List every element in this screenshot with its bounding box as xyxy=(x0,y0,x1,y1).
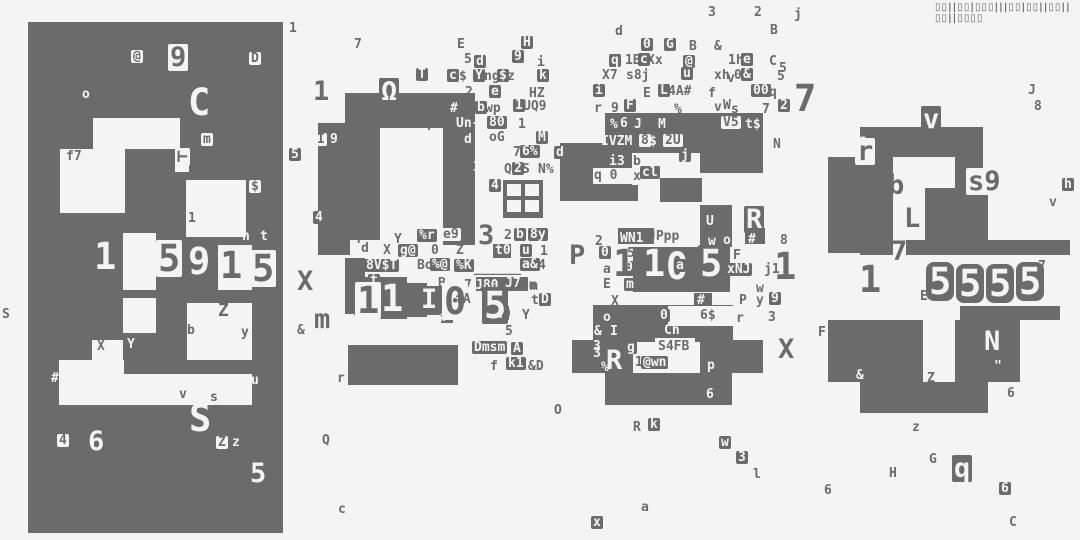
glyph: Un-L xyxy=(456,117,487,130)
glyph: 00 xyxy=(751,84,771,97)
glyph: n xyxy=(242,230,250,243)
glyph: $ xyxy=(249,180,261,193)
glyph: j xyxy=(794,8,802,21)
glyph: A xyxy=(511,342,523,355)
glyph: e xyxy=(741,53,753,66)
glyph: 9 xyxy=(503,308,511,321)
glyph: cl xyxy=(640,166,660,179)
glyph: 3 xyxy=(736,451,748,464)
glyph: IVZM xyxy=(601,135,632,148)
glyph: j1 xyxy=(764,263,780,276)
glyph: y xyxy=(756,294,764,307)
glyph: P xyxy=(569,242,585,269)
glyph: 4 xyxy=(489,179,501,192)
glyph: v xyxy=(1049,196,1057,209)
glyph: X xyxy=(297,268,313,295)
glyph: S xyxy=(522,163,530,176)
glyph: d xyxy=(554,146,566,159)
glyph: g@ xyxy=(398,244,418,257)
glyph: c xyxy=(447,69,459,82)
glyph: Dmsm xyxy=(472,341,507,354)
glyph: Q xyxy=(322,434,330,447)
glyph: G xyxy=(664,38,676,51)
glyph: 6 xyxy=(1007,387,1015,400)
glyph: 5 xyxy=(156,240,182,277)
pixel-block xyxy=(828,320,923,382)
glitch-canvas: @9DoCmf7⊢$1nt115915SZbyXY#uvsS46Zz51751I… xyxy=(0,0,1080,540)
glyph: & xyxy=(594,325,602,338)
glyph: t$ xyxy=(745,118,761,131)
pixel-block xyxy=(660,178,702,202)
glyph: z xyxy=(912,421,920,434)
glyph: % xyxy=(610,118,618,131)
glyph: 6 xyxy=(824,484,832,497)
glyph: Z xyxy=(216,436,228,449)
glyph: & xyxy=(714,40,722,53)
glyph: q xyxy=(952,455,972,482)
glyph: E xyxy=(920,290,928,303)
glyph: o xyxy=(82,88,90,101)
glyph: t0 xyxy=(495,244,511,257)
glyph: 4 xyxy=(57,434,69,447)
glyph: ______ xyxy=(474,262,521,275)
window-grid-icon xyxy=(503,180,543,218)
glyph: 5 xyxy=(698,245,724,282)
glyph: 5 xyxy=(505,325,513,338)
pixel-block-cutout xyxy=(59,374,252,405)
glyph: 7 xyxy=(794,80,816,117)
glyph: H xyxy=(889,467,897,480)
glyph: # xyxy=(748,233,756,246)
glyph: u xyxy=(520,244,532,257)
glyph: a xyxy=(674,259,686,272)
glyph: j xyxy=(679,149,691,162)
glyph: 7 xyxy=(762,103,770,116)
glyph: i3 xyxy=(609,155,625,168)
glyph: 7 xyxy=(354,38,362,51)
glyph: 6% xyxy=(520,145,540,158)
barcode-strip: ▯▯||▯▯|▯▯▯|||▯▯|▯▯||▯▯||▯▯||▯▯▯▯ xyxy=(935,2,1080,24)
glyph: 2 xyxy=(450,362,458,375)
glyph: 4 xyxy=(313,211,325,224)
glyph: I xyxy=(610,325,618,338)
glyph: t xyxy=(394,360,410,387)
glyph: P xyxy=(427,120,435,133)
glyph: H xyxy=(521,36,533,49)
glyph: y xyxy=(967,199,975,212)
glyph: & xyxy=(297,324,305,337)
glyph: 3 xyxy=(478,222,494,249)
glyph: m xyxy=(201,133,213,146)
glyph: 3 xyxy=(708,6,716,19)
glyph: F xyxy=(733,249,741,262)
glyph: Q xyxy=(504,163,512,176)
glyph: d xyxy=(615,25,623,38)
glyph: 5 xyxy=(926,262,954,301)
glyph: t xyxy=(531,294,539,307)
glyph: 1 xyxy=(188,212,196,225)
glyph: 4 xyxy=(538,259,546,272)
glyph: Ω xyxy=(379,78,399,105)
glyph: 1 xyxy=(126,234,148,271)
glyph: X7 xyxy=(602,69,618,82)
glyph: # xyxy=(51,372,59,385)
glyph: E xyxy=(643,87,651,100)
glyph: r xyxy=(855,138,875,165)
glyph: w xyxy=(719,436,731,449)
glyph: D xyxy=(539,293,551,306)
glyph: 3 xyxy=(768,311,776,324)
glyph: &D xyxy=(528,360,544,373)
glyph: R xyxy=(744,206,764,233)
glyph: 5 xyxy=(956,264,984,303)
glyph: UQ9 xyxy=(523,100,546,113)
glyph: I xyxy=(315,133,327,146)
glyph: E xyxy=(457,38,465,51)
glyph: Z xyxy=(456,244,464,257)
glyph: 0 xyxy=(658,309,670,322)
glyph: 0 xyxy=(641,38,653,51)
glyph: N% xyxy=(538,163,554,176)
glyph: b xyxy=(187,324,195,337)
glyph: f7 xyxy=(66,150,82,163)
glyph: s8j xyxy=(626,69,649,82)
glyph: % xyxy=(674,103,682,116)
glyph: @wn xyxy=(641,356,668,369)
glyph: # xyxy=(440,311,448,324)
pixel-block xyxy=(828,157,860,253)
glyph: 2 xyxy=(778,99,790,112)
glyph: # xyxy=(450,102,458,115)
glyph: Y xyxy=(522,309,530,322)
glyph: S4FB xyxy=(658,340,689,353)
glyph: 2 xyxy=(465,86,473,99)
glyph: o xyxy=(603,311,611,324)
glyph: Z xyxy=(927,372,935,385)
glyph: y xyxy=(241,326,249,339)
glyph: %K xyxy=(454,259,474,272)
glyph: X xyxy=(383,244,391,257)
glyph: 1 xyxy=(381,280,403,317)
glyph: 7 xyxy=(891,238,907,265)
glyph: F xyxy=(818,326,826,339)
glyph: 1 xyxy=(859,261,881,298)
glyph: 1 xyxy=(643,245,665,282)
glyph: q 0 xyxy=(594,169,617,182)
glyph: S xyxy=(2,308,10,321)
glyph: 6 xyxy=(999,482,1011,495)
glyph: %r xyxy=(417,229,437,242)
glyph: q xyxy=(769,86,777,99)
glyph: L xyxy=(904,205,920,232)
glyph: 9 xyxy=(168,44,188,71)
glyph: m xyxy=(314,306,330,333)
glyph: 2 xyxy=(504,229,512,242)
glyph: %@ xyxy=(430,258,450,271)
glyph: P xyxy=(739,294,747,307)
pixel-block-cutout xyxy=(59,360,124,374)
glyph: 1 xyxy=(94,238,116,275)
glyph: 1 xyxy=(289,22,297,35)
glyph: V5 xyxy=(721,116,741,129)
glyph: f xyxy=(490,360,498,373)
glyph: C xyxy=(188,84,210,121)
glyph: 8y xyxy=(528,228,548,241)
glyph: b xyxy=(888,172,904,199)
glyph: e9 xyxy=(441,228,461,241)
glyph: d xyxy=(359,242,371,255)
glyph: Z xyxy=(218,302,229,320)
glyph: 1 xyxy=(313,78,329,105)
glyph: s9 xyxy=(966,168,1003,195)
glyph: m xyxy=(530,280,538,293)
glyph: z xyxy=(232,436,240,449)
glyph: k1 xyxy=(506,357,526,370)
glyph: 8 xyxy=(1034,100,1042,113)
glyph: 5 xyxy=(779,62,787,75)
glyph: x xyxy=(591,516,603,529)
glyph: A xyxy=(879,196,887,209)
glyph: c xyxy=(338,503,346,516)
glyph: a xyxy=(641,501,649,514)
glyph: Xx xyxy=(647,54,663,67)
glyph: 80 xyxy=(487,116,507,129)
glyph: e xyxy=(489,85,501,98)
glyph: D xyxy=(249,52,261,65)
glyph: M xyxy=(658,118,666,131)
glyph: a& xyxy=(520,258,540,271)
glyph: 1 xyxy=(355,282,381,319)
glyph: U xyxy=(706,215,714,228)
glyph: k xyxy=(648,418,660,431)
glyph: C xyxy=(769,55,777,68)
window-pane xyxy=(525,200,539,212)
glyph: B xyxy=(689,40,697,53)
glyph: 5 xyxy=(250,460,266,487)
glyph: k xyxy=(537,69,549,82)
glyph: 3 xyxy=(593,347,601,360)
pixel-block xyxy=(860,200,893,255)
glyph: 9 xyxy=(330,133,338,146)
glyph: 6 xyxy=(706,388,714,401)
glyph: 0 xyxy=(431,244,439,257)
window-pane xyxy=(507,200,521,212)
glyph: d xyxy=(474,55,486,68)
glyph: u xyxy=(681,67,693,80)
glyph: 7 xyxy=(1038,260,1046,273)
glyph: 4A# xyxy=(668,85,691,98)
glyph: J xyxy=(634,118,642,131)
glyph: O xyxy=(554,404,562,417)
pixel-block xyxy=(960,306,1060,320)
glyph: xNJ xyxy=(725,263,752,276)
glyph: wp xyxy=(485,102,501,115)
glyph: $ xyxy=(459,70,467,83)
glyph: g xyxy=(625,341,637,354)
pixel-block xyxy=(906,240,1070,255)
glyph: q xyxy=(609,54,621,67)
window-pane xyxy=(507,184,521,196)
glyph: M xyxy=(536,131,548,144)
glyph: C xyxy=(1009,516,1017,529)
glyph: 1 xyxy=(613,245,635,282)
glyph: 1 xyxy=(220,247,242,284)
glyph: @ xyxy=(131,50,143,63)
glyph: z xyxy=(507,70,515,83)
glyph: G xyxy=(929,453,937,466)
glyph: 5 xyxy=(464,53,472,66)
glyph: v xyxy=(921,106,941,133)
glyph: B xyxy=(770,24,778,37)
glyph: $ xyxy=(649,135,657,148)
glyph: ⊢ xyxy=(175,148,190,166)
glyph: 5 xyxy=(250,250,276,287)
glyph: 3M xyxy=(473,161,489,174)
glyph: r xyxy=(594,102,602,115)
glyph: o5 xyxy=(723,234,739,247)
glyph: 9 xyxy=(186,243,212,280)
pixel-block-cutout xyxy=(186,180,246,237)
glyph: N xyxy=(984,328,1000,355)
glyph: 6$ xyxy=(700,309,716,322)
glyph: p xyxy=(707,359,715,372)
glyph: X xyxy=(778,336,794,363)
glyph: X xyxy=(611,295,619,308)
glyph: 5 xyxy=(986,264,1014,303)
glyph: I xyxy=(421,286,437,313)
glyph: 8V$T xyxy=(364,259,399,272)
pixel-block-cutout xyxy=(93,118,180,149)
glyph: S xyxy=(189,400,211,437)
glyph: F xyxy=(624,99,636,112)
glyph: R xyxy=(606,347,622,374)
glyph: 1 xyxy=(518,118,526,131)
glyph: 1 xyxy=(540,245,548,258)
pixel-block xyxy=(345,125,380,240)
glyph: 9 xyxy=(769,292,781,305)
glyph: u xyxy=(251,374,259,387)
glyph: 6 xyxy=(88,428,104,455)
glyph: R xyxy=(633,421,641,434)
glyph: t xyxy=(260,230,268,243)
glyph: J xyxy=(1028,84,1036,97)
window-pane xyxy=(525,184,539,196)
glyph: 2 xyxy=(754,6,762,19)
glyph: T xyxy=(416,68,428,81)
glyph: a xyxy=(603,263,611,276)
glyph: Y xyxy=(127,338,135,351)
glyph: v xyxy=(179,388,187,401)
glyph: Ch xyxy=(664,324,680,337)
glyph: 2U xyxy=(663,134,683,147)
glyph: & xyxy=(854,369,866,382)
glyph: 6 xyxy=(618,117,630,130)
glyph: l xyxy=(753,468,761,481)
glyph: d xyxy=(464,133,472,146)
glyph: # xyxy=(697,294,705,307)
glyph: 5 xyxy=(289,148,301,161)
glyph: h xyxy=(1062,178,1074,191)
glyph: & xyxy=(741,68,753,81)
glyph: N xyxy=(773,138,781,151)
glyph: $ xyxy=(464,229,472,242)
glyph: X xyxy=(97,340,105,353)
glyph: r xyxy=(337,372,345,385)
glyph: oG xyxy=(489,131,505,144)
glyph: E xyxy=(603,278,611,291)
pixel-block-cutout xyxy=(123,298,156,333)
glyph: i xyxy=(593,84,605,97)
glyph: 9 xyxy=(611,102,619,115)
glyph: f xyxy=(708,87,716,100)
glyph: " xyxy=(994,360,1002,373)
glyph: fA xyxy=(455,293,471,306)
glyph: b xyxy=(514,228,526,241)
glyph: 0 xyxy=(599,246,611,259)
glyph: r xyxy=(736,312,744,325)
pixel-block xyxy=(860,382,988,413)
glyph: 9 xyxy=(512,50,524,63)
